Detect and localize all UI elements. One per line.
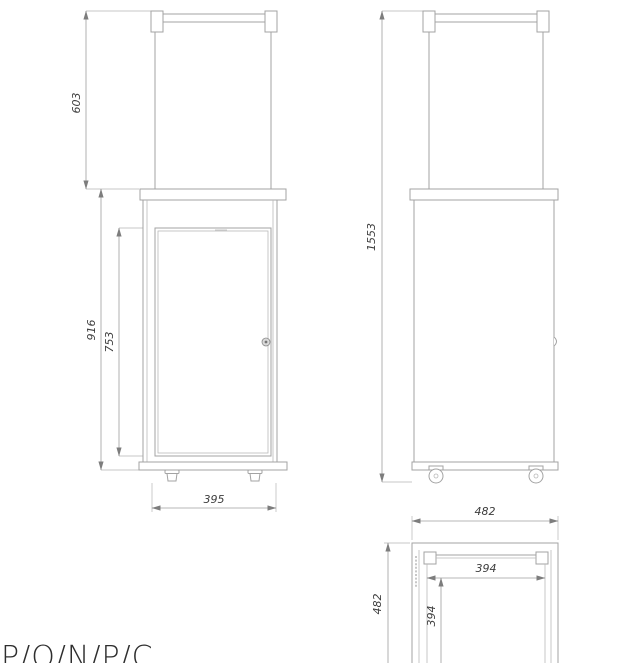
dimension-395: 395 — [152, 483, 276, 512]
front-view: 603 916 753 — [70, 11, 287, 512]
dim-916-label: 916 — [85, 320, 98, 341]
cabinet-side — [410, 189, 558, 483]
housing-body — [143, 200, 277, 462]
dimension-482-depth: 482 — [371, 543, 410, 663]
dim-395-label: 395 — [204, 493, 225, 506]
bar-tube — [163, 14, 265, 22]
dim-603-label: 603 — [70, 93, 83, 114]
top-plate — [140, 189, 286, 200]
post-plan-right — [536, 552, 548, 564]
bar-tube — [435, 14, 537, 22]
dim-394-depth-label: 394 — [425, 606, 438, 627]
model-designation-label: P/O/N/P/C — [1, 640, 154, 663]
top-bar-front — [151, 11, 277, 189]
dim-394-width-label: 394 — [476, 562, 497, 575]
door-lock-center — [265, 341, 268, 344]
top-view: 482 482 394 394 — [371, 505, 558, 663]
caster-right — [529, 466, 543, 483]
caster-left — [429, 466, 443, 483]
side-view: 1553 — [365, 11, 558, 483]
top-bar-side — [423, 11, 549, 189]
dimension-482-width: 482 — [412, 505, 558, 540]
handle-profile — [554, 337, 557, 346]
bar-end-cap-right — [265, 11, 277, 32]
plan-outline — [412, 543, 558, 663]
bottom-plate — [139, 462, 287, 470]
technical-drawing-sheet: 603 916 753 — [0, 0, 624, 663]
drawing-canvas: 603 916 753 — [0, 0, 624, 663]
bar-end-cap-left — [423, 11, 435, 32]
post-plan-left — [424, 552, 436, 564]
top-plate — [410, 189, 558, 200]
bar-end-cap-left — [151, 11, 163, 32]
foot-right — [248, 470, 262, 481]
bar-end-cap-right — [537, 11, 549, 32]
dim-1553-label: 1553 — [365, 223, 378, 251]
dim-482-depth-label: 482 — [371, 594, 384, 615]
dimension-916: 916 — [85, 189, 139, 470]
foot-left — [165, 470, 179, 481]
dimension-603: 603 — [70, 11, 151, 189]
dim-482-width-label: 482 — [475, 505, 496, 518]
housing-body — [414, 200, 554, 462]
dim-753-label: 753 — [103, 332, 116, 353]
cabinet-front — [139, 189, 287, 481]
